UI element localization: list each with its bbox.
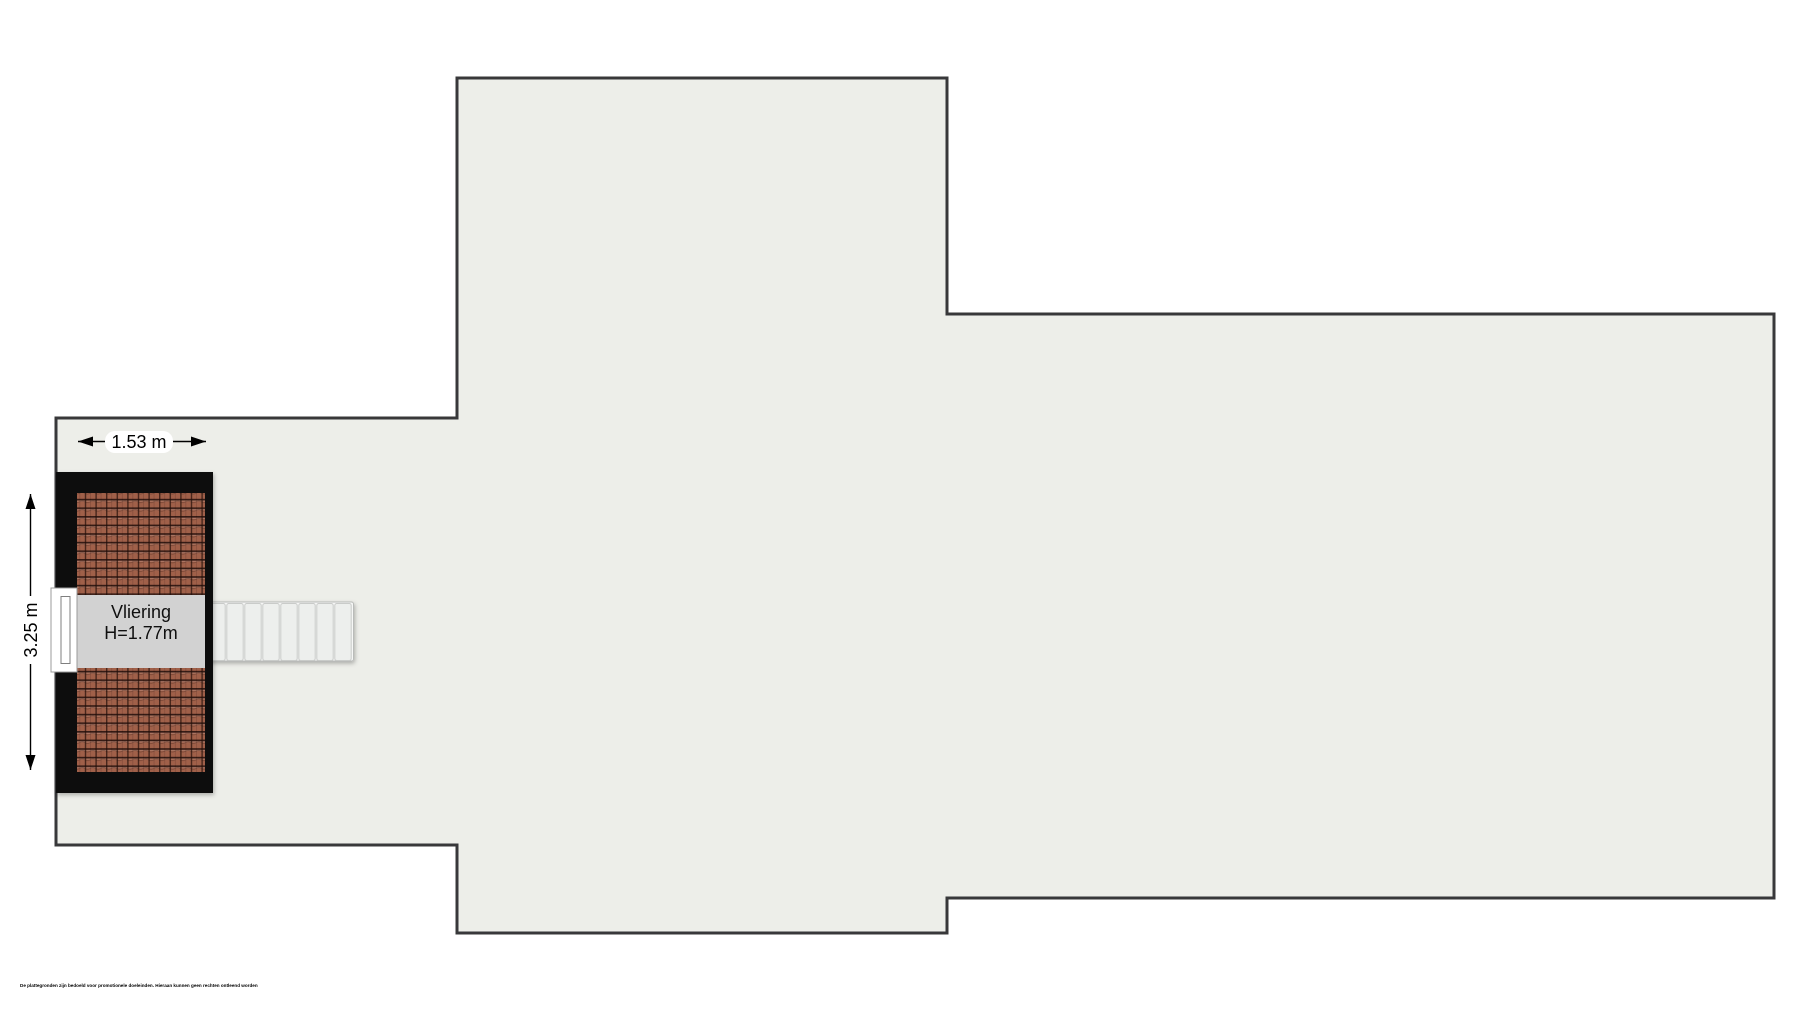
stair-step <box>317 604 333 661</box>
plan-outline <box>56 78 1774 933</box>
window-glass <box>61 597 70 664</box>
height-dimension-label: 3.25 m <box>20 596 42 664</box>
disclaimer-text: De plattegronden zijn bedoeld voor promo… <box>20 983 258 988</box>
stair-step <box>281 604 297 661</box>
stair-step <box>299 604 315 661</box>
roof-tiles-bottom <box>77 668 205 772</box>
stair-step <box>227 604 243 661</box>
width-dimension-label: 1.53 m <box>105 431 173 453</box>
arrow-up-icon <box>26 494 36 509</box>
stair-step <box>245 604 261 661</box>
roof-tiles-top <box>77 493 205 595</box>
room-name: Vliering <box>71 602 211 623</box>
room-label: Vliering H=1.77m <box>71 602 211 644</box>
staircase <box>207 602 354 661</box>
floorplan-canvas <box>0 0 1800 1013</box>
floorplan-page: 1.53 m 3.25 m Vliering H=1.77m De platte… <box>0 0 1800 1013</box>
stair-step <box>263 604 279 661</box>
stair-step <box>335 604 351 661</box>
arrow-down-icon <box>26 755 36 770</box>
room-height-value: H=1.77m <box>71 623 211 644</box>
